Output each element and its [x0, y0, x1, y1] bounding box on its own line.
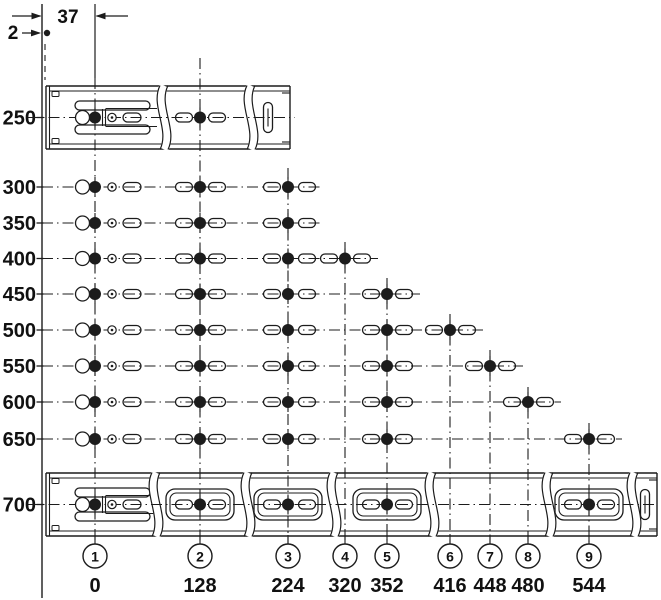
dimension-label-7: 448	[473, 575, 506, 597]
circled-number-5: 5	[383, 549, 391, 565]
diagram-background	[0, 0, 661, 600]
drill-point	[381, 396, 393, 408]
circled-number-9: 9	[585, 549, 593, 565]
row-label-500: 500	[3, 320, 36, 342]
drill-point	[282, 433, 294, 445]
drill-point	[194, 433, 206, 445]
pilot-center-dot	[111, 186, 114, 189]
drill-point	[484, 360, 496, 372]
drill-point	[282, 181, 294, 193]
circled-number-6: 6	[446, 549, 454, 565]
drill-point	[194, 288, 206, 300]
round-hole	[76, 216, 90, 230]
drill-point	[89, 433, 101, 445]
pilot-center-dot	[111, 365, 114, 368]
round-hole	[76, 180, 90, 194]
drill-point	[194, 112, 206, 124]
dimension-label-5: 352	[370, 575, 403, 597]
drill-point	[89, 253, 101, 265]
drilling-pattern-diagram: 2503003504004505005506006507003721021283…	[0, 0, 661, 600]
drill-point	[194, 396, 206, 408]
dimension-label-9: 544	[572, 575, 606, 597]
drill-point	[282, 217, 294, 229]
row-label-700: 700	[3, 495, 36, 517]
rail-hook-tab	[52, 479, 59, 484]
rail-hook-tab	[52, 526, 59, 531]
dimension-label-8: 480	[511, 575, 544, 597]
drill-point	[89, 499, 101, 511]
pilot-center-dot	[111, 222, 114, 225]
dimension-label-2: 128	[183, 575, 216, 597]
drill-point	[381, 324, 393, 336]
round-hole	[76, 111, 90, 125]
round-hole	[76, 359, 90, 373]
row-label-600: 600	[3, 392, 36, 414]
drilling-diagram-page: 2503003504004505005506006507003721021283…	[0, 0, 661, 600]
drill-point	[89, 217, 101, 229]
drill-point	[194, 217, 206, 229]
row-label-450: 450	[3, 284, 36, 306]
drill-point	[381, 288, 393, 300]
drill-point	[282, 324, 294, 336]
row-label-350: 350	[3, 213, 36, 235]
row-label-650: 650	[3, 429, 36, 451]
dimension-label-4: 320	[328, 575, 361, 597]
rail-hook-tab	[52, 139, 59, 144]
drill-point	[194, 181, 206, 193]
dim-width-label: 37	[57, 7, 78, 28]
circled-number-7: 7	[486, 549, 494, 565]
circled-number-1: 1	[91, 549, 99, 565]
drill-point	[194, 499, 206, 511]
drill-point	[583, 433, 595, 445]
drill-point	[444, 324, 456, 336]
drill-point	[282, 288, 294, 300]
row-label-400: 400	[3, 249, 36, 271]
drill-point	[381, 360, 393, 372]
drill-point	[381, 433, 393, 445]
rail-hook-tab	[52, 92, 59, 97]
circled-number-4: 4	[341, 549, 349, 565]
drill-point	[194, 360, 206, 372]
pilot-center-dot	[111, 401, 114, 404]
drill-point	[89, 324, 101, 336]
dimension-label-1: 0	[89, 575, 100, 597]
drill-point	[89, 112, 101, 124]
circled-number-2: 2	[196, 549, 204, 565]
row-label-550: 550	[3, 356, 36, 378]
round-hole	[76, 498, 90, 512]
dimension-label-3: 224	[271, 575, 305, 597]
drill-point	[339, 253, 351, 265]
circled-number-8: 8	[524, 549, 532, 565]
round-hole	[76, 432, 90, 446]
drill-point	[282, 499, 294, 511]
pilot-center-dot	[111, 257, 114, 260]
round-hole	[76, 395, 90, 409]
pilot-center-dot	[111, 329, 114, 332]
dim-offset-label: 2	[8, 23, 19, 44]
pilot-center-dot	[111, 116, 114, 119]
drill-point	[282, 396, 294, 408]
drill-point	[89, 288, 101, 300]
row-label-300: 300	[3, 177, 36, 199]
round-hole	[76, 287, 90, 301]
offset-hole-dot	[44, 30, 50, 36]
row-label-250: 250	[3, 108, 36, 130]
round-hole	[76, 252, 90, 266]
pilot-center-dot	[111, 438, 114, 441]
drill-point	[583, 499, 595, 511]
drill-point	[282, 253, 294, 265]
drill-point	[89, 396, 101, 408]
drill-point	[522, 396, 534, 408]
drill-point	[89, 181, 101, 193]
circled-number-3: 3	[284, 549, 292, 565]
drill-point	[282, 360, 294, 372]
pilot-center-dot	[111, 293, 114, 296]
drill-point	[194, 253, 206, 265]
drill-point	[89, 360, 101, 372]
pilot-center-dot	[111, 503, 114, 506]
drill-point	[381, 499, 393, 511]
round-hole	[76, 323, 90, 337]
dimension-label-6: 416	[433, 575, 466, 597]
drill-point	[194, 324, 206, 336]
